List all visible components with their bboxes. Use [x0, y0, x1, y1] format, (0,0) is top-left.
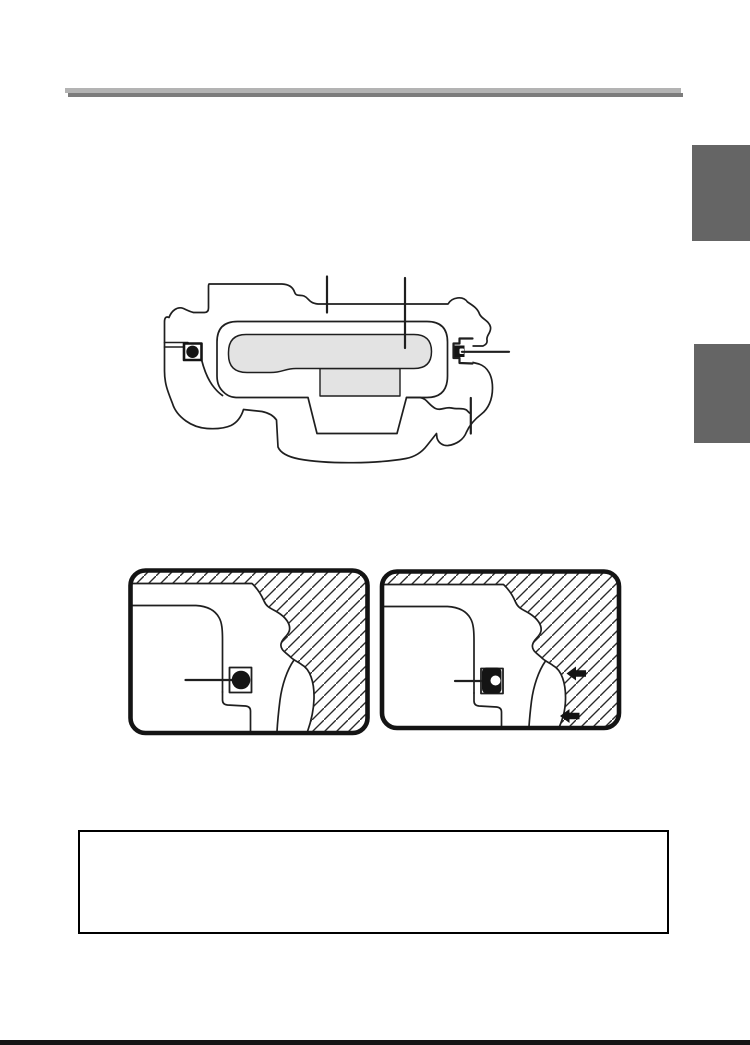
- camera-cross-section-figure: [150, 262, 530, 477]
- page-edge-tab-upper: [692, 145, 750, 241]
- eyelet-detail-panel-left: [127, 564, 375, 738]
- eyelet-detail-panel-right: [377, 564, 627, 736]
- page-edge-tab-lower: [694, 344, 750, 443]
- left-eyelet: [186, 346, 198, 358]
- gasket: [229, 335, 432, 373]
- header-rule-dark-bar: [68, 93, 683, 97]
- note-box: [78, 830, 669, 934]
- manual-page: { "document": { "kind": "scanned-manual-…: [0, 0, 750, 1045]
- eyelet-ball: [232, 671, 251, 690]
- center-block: [320, 369, 400, 397]
- page-footer-bar: [0, 1040, 750, 1045]
- eyelet-clip-hole: [491, 676, 501, 686]
